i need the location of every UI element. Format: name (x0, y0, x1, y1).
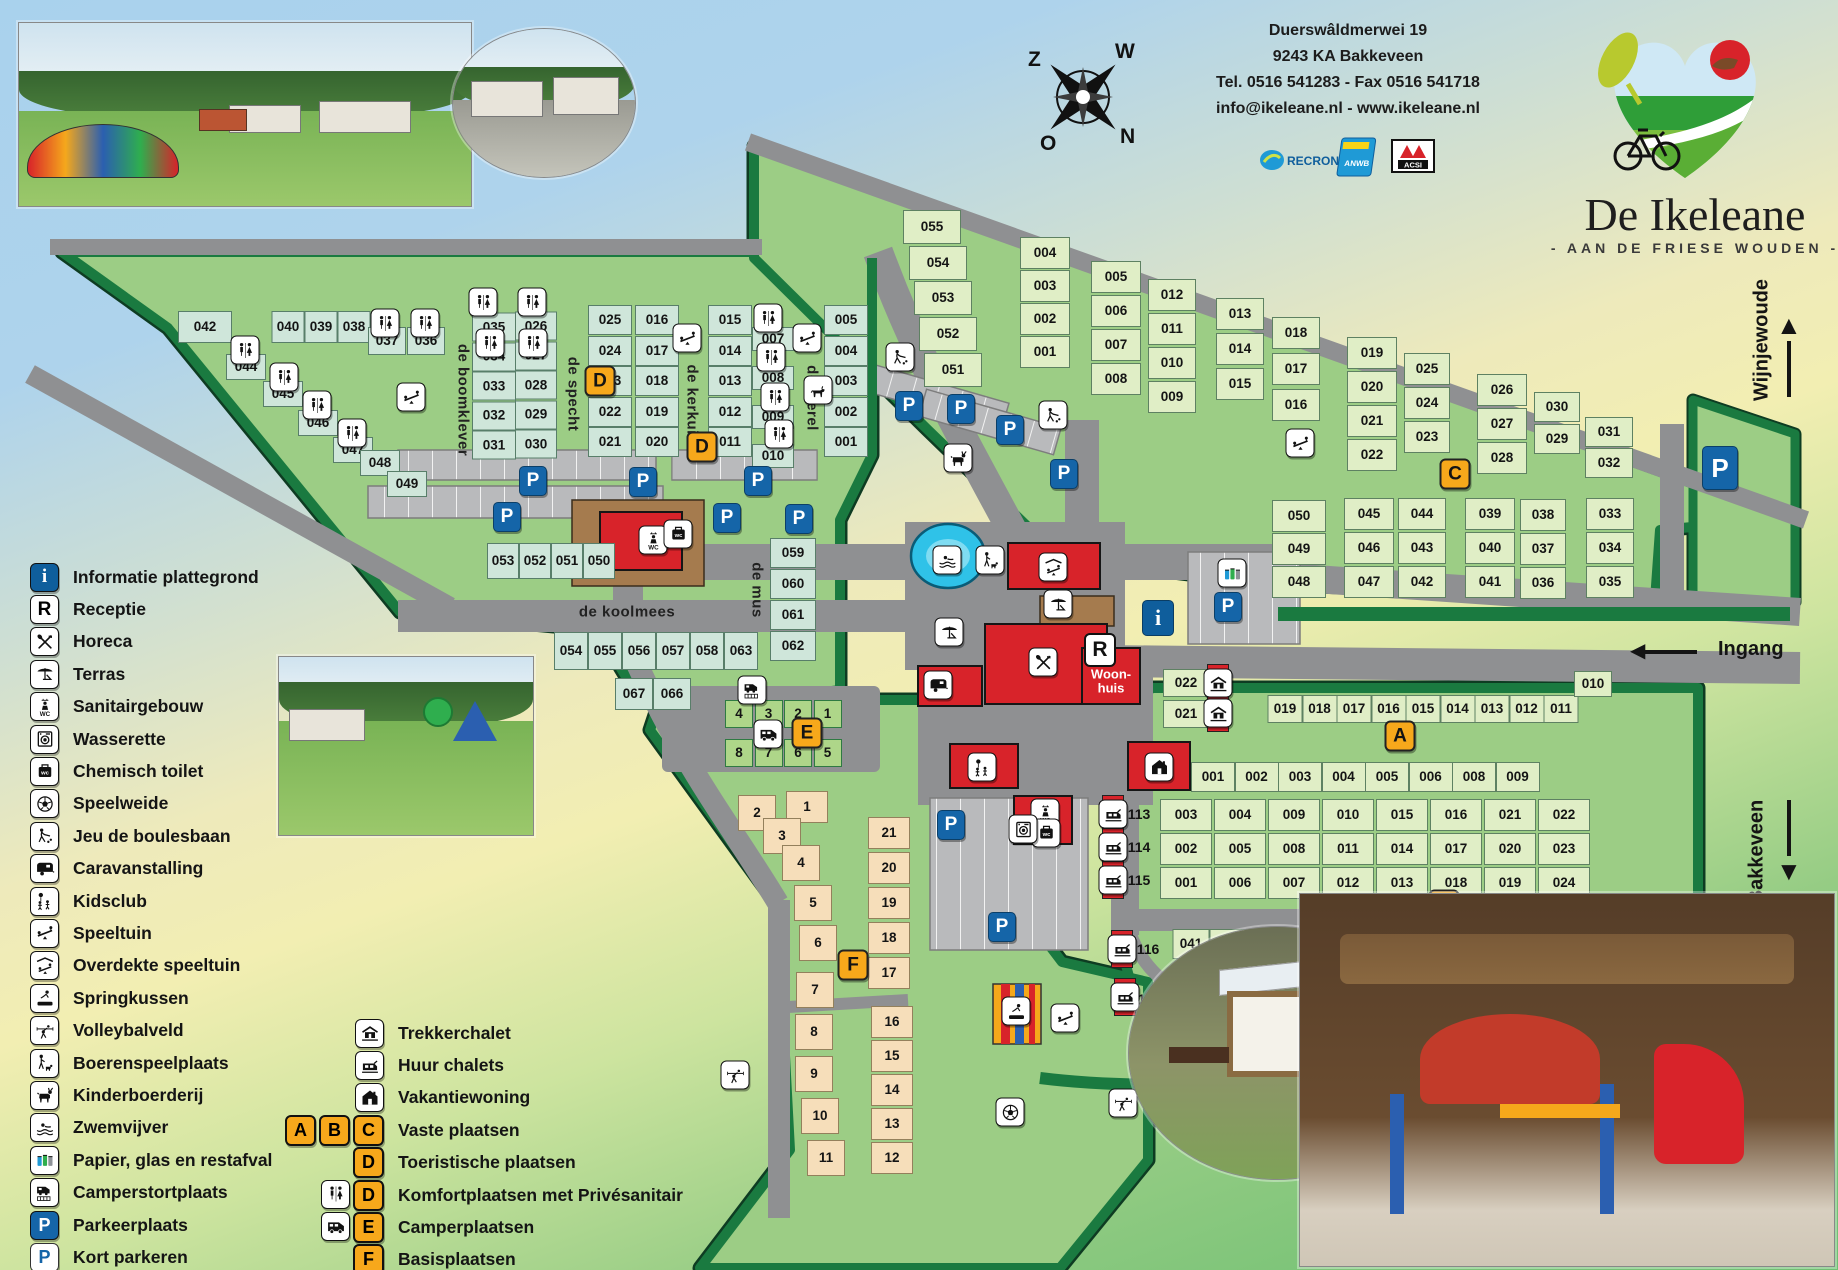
plot-A-016[interactable]: 016 (1371, 695, 1406, 723)
plot-C-008[interactable]: 008 (1091, 363, 1141, 395)
plot-A-018[interactable]: 018 (1302, 695, 1337, 723)
plot-D-022[interactable]: 022 (588, 397, 632, 427)
plot-C-012[interactable]: 012 (1148, 279, 1196, 311)
plot-D-057[interactable]: 057 (656, 632, 690, 670)
persondog-icon[interactable] (976, 546, 1005, 575)
legend-item-basisplaatsen: FBasisplaatsen (296, 1244, 683, 1270)
plot-F-9[interactable]: 9 (795, 1056, 833, 1092)
plot-A-004[interactable]: 004 (1322, 762, 1366, 792)
plot-D-018[interactable]: 018 (635, 366, 679, 396)
plot-D-053[interactable]: 053 (487, 543, 519, 579)
plot-C-035[interactable]: 035 (1586, 566, 1634, 598)
parking-icon[interactable]: P (713, 503, 741, 533)
wash-icon[interactable] (1009, 815, 1038, 844)
plot-D-031[interactable]: 031 (472, 431, 516, 460)
chalet2-icon (355, 1051, 384, 1080)
plot-A-008[interactable]: 008 (1452, 762, 1496, 792)
legend-label: Sanitairgebouw (73, 696, 203, 717)
umbrella-icon[interactable] (935, 618, 964, 647)
plot-F-16[interactable]: 16 (871, 1006, 913, 1038)
plot-D-042[interactable]: 042 (178, 311, 232, 343)
plot-C-009[interactable]: 009 (1148, 381, 1196, 413)
plot-F-12[interactable]: 12 (871, 1142, 913, 1174)
plot-A-014[interactable]: 014 (1440, 695, 1475, 723)
plot-C-050[interactable]: 050 (1272, 500, 1326, 532)
zone-letter-E: E (353, 1212, 384, 1243)
plot-C-013[interactable]: 013 (1216, 298, 1264, 330)
wc-icon[interactable] (765, 420, 794, 449)
wc-icon[interactable] (757, 343, 786, 372)
plot-C-031[interactable]: 031 (1585, 417, 1633, 447)
plot-D-052[interactable]: 052 (519, 543, 551, 579)
wc-icon[interactable] (761, 383, 790, 412)
seesaw-icon[interactable] (397, 383, 426, 412)
legend-label: Papier, glas en restafval (73, 1150, 272, 1171)
goat-icon[interactable] (944, 444, 973, 473)
plot-F-4[interactable]: 4 (782, 845, 820, 881)
plot-C-028[interactable]: 028 (1477, 442, 1527, 474)
plot-A-003[interactable]: 003 (1278, 762, 1322, 792)
zone-letter-D: D (353, 1180, 384, 1211)
plot-B-005[interactable]: 005 (1214, 833, 1266, 865)
parking-icon[interactable]: P (947, 394, 975, 424)
plot-C-034[interactable]: 034 (1586, 532, 1634, 564)
plot-C-032[interactable]: 032 (1585, 448, 1633, 478)
plot-D-054[interactable]: 054 (554, 632, 588, 670)
legend-item-receptie: RReceptie (30, 593, 272, 625)
soccer-icon[interactable] (996, 1098, 1025, 1127)
wc-icon[interactable] (518, 288, 547, 317)
plot-B-010[interactable]: 010 (1322, 799, 1374, 831)
plot-E-8[interactable]: 8 (725, 739, 753, 767)
plot-D-032[interactable]: 032 (472, 401, 516, 430)
roofseesaw-icon[interactable] (1039, 553, 1068, 582)
san-icon (30, 692, 59, 721)
plot-F-11[interactable]: 11 (807, 1140, 845, 1176)
parking-icon[interactable]: P (629, 467, 657, 497)
legend-label: Chemisch toilet (73, 761, 203, 782)
plot-C-045[interactable]: 045 (1344, 498, 1394, 530)
plot-C-052[interactable]: 052 (919, 317, 977, 351)
plot-D-015[interactable]: 015 (708, 305, 752, 335)
legend-item-camperplaatsen: ECamperplaatsen (296, 1211, 683, 1243)
plot-F-6[interactable]: 6 (799, 925, 837, 961)
address-line3: Tel. 0516 541283 - Fax 0516 541718 (1198, 70, 1498, 96)
plot-C-043[interactable]: 043 (1398, 532, 1446, 564)
plot-F-13[interactable]: 13 (871, 1108, 913, 1140)
zone-letter-F: F (353, 1244, 384, 1270)
plot-D-055[interactable]: 055 (588, 632, 622, 670)
bins-icon (30, 1146, 59, 1175)
legend-item-goat: Kinderboerderij (30, 1079, 272, 1111)
compass-o-label: O (1040, 132, 1056, 156)
legend-label: Zwemvijver (73, 1117, 168, 1138)
plot-B-022[interactable]: 022 (1538, 799, 1590, 831)
plot-C-020[interactable]: 020 (1347, 371, 1397, 403)
plot-B-011[interactable]: 011 (1322, 833, 1374, 865)
plot-D-001[interactable]: 001 (824, 427, 868, 457)
legend-label: Speelweide (73, 793, 168, 814)
plot-C-007[interactable]: 007 (1091, 329, 1141, 361)
bins-icon[interactable] (1218, 559, 1247, 588)
plot-C-038[interactable]: 038 (1520, 499, 1566, 531)
plot-C-026[interactable]: 026 (1477, 374, 1527, 406)
svg-text:ANWB: ANWB (1344, 159, 1370, 168)
parking-icon[interactable]: P (493, 502, 521, 532)
legend-label: Toeristische plaatsen (398, 1152, 576, 1173)
plot-B-006[interactable]: 006 (1214, 867, 1266, 899)
plot-A-010[interactable]: 010 (1574, 671, 1612, 697)
plot-C-003[interactable]: 003 (1020, 270, 1070, 302)
wc-icon[interactable] (411, 309, 440, 338)
seesaw-icon[interactable] (793, 324, 822, 353)
zone-badge-D[interactable]: D (585, 366, 616, 397)
photo-play-field (278, 656, 534, 836)
chalet-icon[interactable] (1204, 669, 1233, 698)
plot-A-015[interactable]: 015 (1406, 695, 1441, 723)
chalet-icon (355, 1019, 384, 1048)
goat-icon (30, 1081, 59, 1110)
plot-A-013[interactable]: 013 (1475, 695, 1510, 723)
legend-label: Kinderboerderij (73, 1085, 203, 1106)
parking-icon[interactable]: P (996, 415, 1024, 445)
parking-icon[interactable]: P (988, 912, 1016, 942)
plot-C-039[interactable]: 039 (1465, 498, 1515, 530)
plot-A-022[interactable]: 022 (1163, 669, 1209, 697)
plot-C-029[interactable]: 029 (1534, 424, 1580, 454)
plot-C-037[interactable]: 037 (1520, 533, 1566, 565)
plot-A-002[interactable]: 002 (1235, 762, 1279, 792)
plot-D-050[interactable]: 050 (583, 543, 615, 579)
plot-B-008[interactable]: 008 (1268, 833, 1320, 865)
plot-B-017[interactable]: 017 (1430, 833, 1482, 865)
legend-item-cutlery: Horeca (30, 626, 272, 658)
plot-C-010[interactable]: 010 (1148, 347, 1196, 379)
plot-C-053[interactable]: 053 (914, 281, 972, 315)
campervan-icon (321, 1212, 350, 1241)
plot-D-058[interactable]: 058 (690, 632, 724, 670)
plot-B-021[interactable]: 021 (1484, 799, 1536, 831)
plot-D-014[interactable]: 014 (708, 336, 752, 366)
zone-badge-A[interactable]: A (1385, 721, 1416, 752)
plot-C-011[interactable]: 011 (1148, 313, 1196, 345)
zone-badge-E[interactable]: E (792, 718, 823, 749)
plot-D-005[interactable]: 005 (824, 305, 868, 335)
plot-C-015[interactable]: 015 (1216, 368, 1264, 400)
campervan-icon[interactable] (754, 720, 783, 749)
photo-indoor-playground (1299, 893, 1835, 1267)
plot-D-004[interactable]: 004 (824, 336, 868, 366)
plot-C-041[interactable]: 041 (1465, 566, 1515, 598)
zone-badge-C[interactable]: C (1440, 459, 1471, 490)
plot-F-14[interactable]: 14 (871, 1074, 913, 1106)
plot-D-066[interactable]: 066 (653, 678, 691, 710)
parking-icon[interactable]: P (937, 810, 965, 840)
plot-D-060[interactable]: 060 (770, 569, 816, 599)
plot-B-016[interactable]: 016 (1430, 799, 1482, 831)
zone-letter-D: D (353, 1147, 384, 1178)
legend-item-volley: Volleybalveld (30, 1014, 272, 1046)
plot-A-001[interactable]: 001 (1191, 762, 1235, 792)
chalet2-icon[interactable] (1099, 800, 1128, 829)
svg-text:RECRON: RECRON (1287, 154, 1339, 168)
photo-campground-field (18, 22, 472, 207)
plot-B-002[interactable]: 002 (1160, 833, 1212, 865)
chalet2-icon[interactable] (1099, 833, 1128, 862)
plot-C-021[interactable]: 021 (1347, 405, 1397, 437)
plot-C-042[interactable]: 042 (1398, 566, 1446, 598)
plot-C-005[interactable]: 005 (1091, 261, 1141, 293)
plot-B-023[interactable]: 023 (1538, 833, 1590, 865)
plot-D-029[interactable]: 029 (515, 400, 557, 429)
plot-D-067[interactable]: 067 (615, 678, 653, 710)
plot-A-012[interactable]: 012 (1509, 695, 1544, 723)
plot-D-049[interactable]: 049 (387, 471, 427, 497)
dog-icon[interactable] (804, 376, 833, 405)
plot-C-051[interactable]: 051 (924, 353, 982, 387)
plot-D-051[interactable]: 051 (551, 543, 583, 579)
plot-B-004[interactable]: 004 (1214, 799, 1266, 831)
plot-C-004[interactable]: 004 (1020, 237, 1070, 269)
wc-icon[interactable] (754, 304, 783, 333)
plot-D-062[interactable]: 062 (770, 631, 816, 661)
legend-label: Volleybalveld (73, 1020, 184, 1041)
plot-B-009[interactable]: 009 (1268, 799, 1320, 831)
address-line4: info@ikeleane.nl - www.ikeleane.nl (1198, 96, 1498, 122)
legend-label: Informatie plattegrond (73, 567, 259, 588)
wc-icon[interactable] (338, 419, 367, 448)
plot-A-019[interactable]: 019 (1268, 695, 1303, 723)
plot-D-028[interactable]: 028 (515, 371, 557, 400)
legend-label: Terras (73, 664, 125, 685)
plot-C-036[interactable]: 036 (1520, 567, 1566, 599)
kids-icon[interactable] (968, 753, 997, 782)
legend-item-persondog: Boerenspeelplaats (30, 1047, 272, 1079)
plot-D-039[interactable]: 039 (305, 311, 338, 343)
plot-B-015[interactable]: 015 (1376, 799, 1428, 831)
parking-icon[interactable]: P (519, 466, 547, 496)
plot-F-19[interactable]: 19 (868, 887, 910, 919)
seesaw-icon[interactable] (1286, 429, 1315, 458)
legend-label: Receptie (73, 599, 146, 620)
parking-icon[interactable]: P (785, 504, 813, 534)
plot-C-001[interactable]: 001 (1020, 336, 1070, 368)
legend-item-roofseesaw: Overdekte speeltuin (30, 950, 272, 982)
legend-label: Huur chalets (398, 1055, 504, 1076)
arrow-left-icon: ◀ (1630, 638, 1697, 663)
plot-F-10[interactable]: 10 (801, 1098, 839, 1134)
wc-icon[interactable] (469, 288, 498, 317)
plot-C-055[interactable]: 055 (903, 210, 961, 244)
legend-item-komfortplaatsen: DKomfortplaatsen met Privésanitair (296, 1179, 683, 1211)
cutlery-icon (30, 627, 59, 656)
svg-text:ACSI: ACSI (1404, 161, 1422, 170)
street-label-de-specht: de specht (565, 357, 582, 432)
plot-D-063[interactable]: 063 (724, 632, 758, 670)
plot-D-012[interactable]: 012 (708, 397, 752, 427)
umbrella-icon[interactable] (1044, 590, 1073, 619)
plot-F-18[interactable]: 18 (868, 922, 910, 954)
cutlery-icon[interactable] (1029, 648, 1058, 677)
plot-C-040[interactable]: 040 (1465, 532, 1515, 564)
plot-D-019[interactable]: 019 (635, 397, 679, 427)
plot-C-054[interactable]: 054 (909, 246, 967, 280)
parking-icon[interactable]: P (1214, 592, 1242, 622)
parkeer-icon: P (30, 1211, 59, 1240)
legend-label: Springkussen (73, 988, 189, 1009)
legend-item-swim: Zwemvijver (30, 1112, 272, 1144)
plot-D-033[interactable]: 033 (472, 372, 516, 401)
plot-C-047[interactable]: 047 (1344, 566, 1394, 598)
plot-A-021[interactable]: 021 (1163, 700, 1209, 728)
plot-D-038[interactable]: 038 (338, 311, 371, 343)
plot-F-7[interactable]: 7 (796, 972, 834, 1008)
wc-icon[interactable] (476, 329, 505, 358)
legend-item-soccer: Speelweide (30, 788, 272, 820)
plot-B-014[interactable]: 014 (1376, 833, 1428, 865)
legend-label: Kort parkeren (73, 1247, 188, 1268)
road-label-wijnjewoude: Wijnjewoude (1751, 279, 1774, 401)
plot-F-8[interactable]: 8 (795, 1014, 833, 1050)
reception-icon[interactable]: R (1084, 633, 1116, 667)
plot-C-019[interactable]: 019 (1347, 337, 1397, 369)
plot-D-040[interactable]: 040 (272, 311, 305, 343)
plot-C-027[interactable]: 027 (1477, 408, 1527, 440)
plot-C-025[interactable]: 025 (1404, 353, 1450, 385)
wc-icon[interactable] (519, 329, 548, 358)
legend-facilities: iInformatie plattegrondRReceptieHorecaTe… (30, 561, 272, 1270)
plot-C-049[interactable]: 049 (1272, 533, 1326, 565)
legend-item-umbrella: Terras (30, 658, 272, 690)
parking-icon[interactable]: P (1050, 459, 1078, 489)
plot-C-022[interactable]: 022 (1347, 439, 1397, 471)
seesaw-icon[interactable] (1051, 1004, 1080, 1033)
legend-label: Speeltuin (73, 923, 152, 944)
plot-D-013[interactable]: 013 (708, 366, 752, 396)
plot-D-021[interactable]: 021 (588, 427, 632, 457)
legend-item-wash: Wasserette (30, 723, 272, 755)
plot-B-003[interactable]: 003 (1160, 799, 1212, 831)
zone-badge-D[interactable]: D (687, 432, 718, 463)
plot-B-020[interactable]: 020 (1484, 833, 1536, 865)
anwb-camping-logo: ANWB (1337, 138, 1376, 176)
plot-C-016[interactable]: 016 (1272, 389, 1320, 421)
plot-F-15[interactable]: 15 (871, 1040, 913, 1072)
plot-C-014[interactable]: 014 (1216, 333, 1264, 365)
camperstort-icon[interactable] (738, 676, 767, 705)
address-line1: Duerswâldmerwei 19 (1198, 18, 1498, 44)
plot-C-017[interactable]: 017 (1272, 353, 1320, 385)
wc-icon[interactable] (371, 309, 400, 338)
legend-pitch-types: TrekkerchaletHuur chaletsVakantiewoningA… (296, 1017, 683, 1270)
wash-icon (30, 725, 59, 754)
plot-D-024[interactable]: 024 (588, 336, 632, 366)
legend-item-kortparkeren: PKort parkeren (30, 1241, 272, 1270)
seesaw-icon[interactable] (673, 324, 702, 353)
plot-D-059[interactable]: 059 (770, 538, 816, 568)
legend-item-caravan: Caravanstalling (30, 853, 272, 885)
plot-C-006[interactable]: 006 (1091, 295, 1141, 327)
plot-C-023[interactable]: 023 (1404, 421, 1450, 453)
umbrella-icon (30, 660, 59, 689)
plot-C-024[interactable]: 024 (1404, 387, 1450, 419)
boules-icon (30, 822, 59, 851)
plot-C-018[interactable]: 018 (1272, 317, 1320, 349)
plot-C-002[interactable]: 002 (1020, 303, 1070, 335)
campsite-map-page: WC wc RECRON (0, 0, 1838, 1270)
wc-icon[interactable] (231, 336, 260, 365)
plot-D-030[interactable]: 030 (515, 430, 557, 459)
plot-B-001[interactable]: 001 (1160, 867, 1212, 899)
chalet2-icon[interactable] (1099, 866, 1128, 895)
plot-C-044[interactable]: 044 (1398, 498, 1446, 530)
volley-icon[interactable] (721, 1061, 750, 1090)
legend-label: Boerenspeelplaats (73, 1053, 229, 1074)
swim-icon[interactable] (933, 546, 962, 575)
plot-F-20[interactable]: 20 (868, 852, 910, 884)
chalet-icon[interactable] (1204, 699, 1233, 728)
plot-A-006[interactable]: 006 (1409, 762, 1453, 792)
plot-D-061[interactable]: 061 (770, 600, 816, 630)
certification-logos: RECRON ANWB ACSI (1260, 138, 1434, 176)
plot-A-009[interactable]: 009 (1496, 762, 1540, 792)
boules-icon[interactable] (1039, 401, 1068, 430)
kids-icon (30, 887, 59, 916)
caravan-icon[interactable] (924, 671, 953, 700)
plot-A-011[interactable]: 011 (1544, 695, 1579, 723)
street-label-de-boomklever: de boomklever (455, 344, 472, 456)
information-icon[interactable]: i (1142, 600, 1174, 636)
boules-icon[interactable] (886, 343, 915, 372)
zone-badge-F[interactable]: F (838, 950, 869, 981)
compass-n-label: N (1120, 125, 1135, 149)
legend-label: Wasserette (73, 729, 166, 750)
photo-roof-beam (1340, 934, 1794, 984)
plot-A-005[interactable]: 005 (1365, 762, 1409, 792)
plot-F-5[interactable]: 5 (794, 885, 832, 921)
visitor-parking-icon[interactable]: P (1702, 446, 1738, 490)
plot-D-056[interactable]: 056 (622, 632, 656, 670)
arrow-up-icon: ▲ (1776, 310, 1802, 397)
plot-F-21[interactable]: 21 (868, 817, 910, 849)
persondog-icon (30, 1049, 59, 1078)
street-label-de-mus: de mus (749, 562, 766, 618)
tramp-icon (30, 984, 59, 1013)
plot-C-048[interactable]: 048 (1272, 566, 1326, 598)
plot-C-046[interactable]: 046 (1344, 532, 1394, 564)
parking-icon[interactable]: P (744, 466, 772, 496)
legend-item-kids: Kidsclub (30, 885, 272, 917)
receptie-icon: R (30, 595, 59, 624)
zone-letter-A: A (285, 1115, 316, 1146)
plot-A-017[interactable]: 017 (1337, 695, 1372, 723)
plot-D-025[interactable]: 025 (588, 305, 632, 335)
legend-item-san: Sanitairgebouw (30, 691, 272, 723)
house-icon[interactable] (1145, 753, 1174, 782)
parking-icon[interactable]: P (895, 391, 923, 421)
wc-icon[interactable] (270, 363, 299, 392)
plot-C-033[interactable]: 033 (1586, 498, 1634, 530)
tramp-icon[interactable] (1002, 997, 1031, 1026)
plot-D-020[interactable]: 020 (635, 427, 679, 457)
plot-F-17[interactable]: 17 (868, 957, 910, 989)
chem-icon[interactable] (664, 520, 693, 549)
info-icon: i (30, 563, 59, 592)
wc-icon[interactable] (303, 391, 332, 420)
kortparkeren-icon: P (30, 1243, 59, 1270)
brand-logo-heart (1580, 26, 1790, 190)
plot-C-030[interactable]: 030 (1534, 392, 1580, 422)
